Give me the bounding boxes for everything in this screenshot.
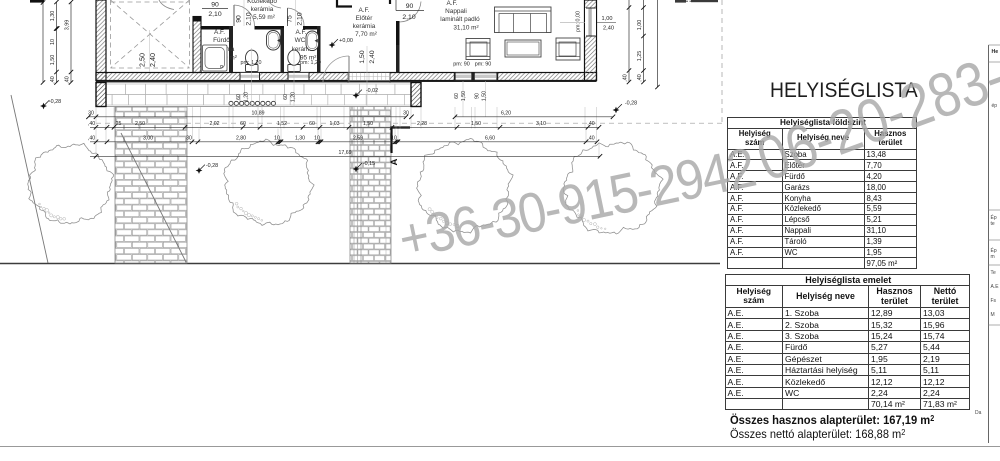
svg-text:Ép: Ép	[991, 214, 997, 221]
svg-text:kerámia: kerámia	[353, 23, 376, 30]
svg-text:Közlekedő: Közlekedő	[247, 0, 277, 5]
svg-text:10,89: 10,89	[252, 111, 265, 117]
svg-text:2,40: 2,40	[369, 50, 376, 63]
svg-text:1,20: 1,20	[244, 92, 250, 102]
svg-text:Ép: Ép	[991, 247, 997, 254]
svg-text:,40: ,40	[623, 74, 629, 82]
svg-text:2,50: 2,50	[138, 53, 147, 67]
svg-text:Da: Da	[975, 410, 982, 416]
svg-text:,40: ,40	[65, 76, 71, 84]
svg-text:1,00: 1,00	[602, 16, 613, 22]
svg-text:,40: ,40	[587, 121, 594, 127]
svg-text:1,30: 1,30	[295, 136, 305, 142]
svg-text:30: 30	[88, 111, 94, 117]
svg-text:1,30: 1,30	[50, 11, 56, 22]
svg-text:pm: 90: pm: 90	[475, 62, 491, 68]
svg-text:25: 25	[116, 121, 122, 127]
svg-text:kerámia: kerámia	[251, 6, 274, 13]
svg-text:A.F.: A.F.	[214, 29, 225, 36]
svg-text:,40: ,40	[88, 121, 95, 127]
svg-text:A: A	[389, 158, 400, 165]
svg-text:pm: 1,20: pm: 1,20	[300, 60, 321, 66]
svg-text:pm: 90: pm: 90	[453, 62, 469, 68]
svg-text:-0,28: -0,28	[206, 163, 218, 169]
svg-text:1,52: 1,52	[277, 121, 287, 127]
svg-text:Előtér: Előtér	[356, 15, 374, 22]
svg-text:pm: 0,00: pm: 0,00	[576, 11, 582, 32]
svg-text:pm: 1,20: pm: 1,20	[241, 60, 262, 66]
svg-text:60: 60	[283, 94, 289, 100]
svg-text:10: 10	[314, 136, 320, 142]
svg-text:2,10: 2,10	[402, 14, 415, 21]
svg-text:Fs: Fs	[991, 298, 997, 304]
svg-text:30: 30	[186, 136, 192, 142]
svg-text:2,10: 2,10	[208, 11, 221, 18]
svg-text:-0,28: -0,28	[625, 101, 637, 107]
svg-text:M: M	[991, 312, 995, 318]
svg-text:,40: ,40	[637, 74, 643, 82]
svg-text:A.F.: A.F.	[295, 29, 306, 36]
svg-text:,40: ,40	[88, 136, 95, 142]
svg-text:A.F.: A.F.	[446, 0, 457, 7]
svg-text:6,20: 6,20	[501, 111, 511, 117]
svg-text:1,50: 1,50	[461, 91, 467, 101]
svg-text:laminált padló: laminált padló	[440, 16, 480, 23]
svg-text:3,10: 3,10	[536, 121, 546, 127]
svg-text:1,20: 1,20	[291, 92, 297, 102]
svg-text:2,10: 2,10	[246, 12, 253, 25]
svg-text:1,50: 1,50	[359, 50, 366, 63]
svg-text:1,50: 1,50	[363, 121, 373, 127]
svg-text:2,80: 2,80	[236, 136, 246, 142]
svg-text:60: 60	[240, 121, 246, 127]
svg-text:-0,02: -0,02	[366, 88, 378, 94]
svg-text:2,50: 2,50	[135, 121, 145, 127]
svg-text:,40: ,40	[50, 76, 56, 84]
svg-text:2,28: 2,28	[417, 121, 427, 127]
svg-text:-0,15: -0,15	[363, 161, 375, 167]
svg-text:75: 75	[287, 15, 294, 23]
svg-text:1,03: 1,03	[329, 121, 339, 127]
svg-text:Te: Te	[991, 270, 997, 276]
svg-text:A.F.: A.F.	[358, 7, 369, 14]
svg-text:60: 60	[454, 93, 460, 99]
svg-text:1,50: 1,50	[50, 55, 56, 66]
svg-text:2,59: 2,59	[353, 136, 363, 142]
svg-text:m: m	[991, 254, 995, 260]
svg-text:1,25: 1,25	[637, 51, 643, 62]
svg-text:2,40: 2,40	[603, 26, 614, 32]
svg-text:WC: WC	[295, 37, 306, 44]
svg-text:3,99: 3,99	[65, 20, 71, 31]
svg-text:10: 10	[391, 136, 397, 142]
svg-text:1,50: 1,50	[471, 121, 481, 127]
svg-text:1,50: 1,50	[482, 91, 488, 101]
svg-text:90: 90	[236, 15, 243, 23]
svg-text:30: 30	[403, 111, 409, 117]
svg-text:31,10 m²: 31,10 m²	[453, 25, 478, 32]
svg-text:17,69: 17,69	[339, 150, 352, 156]
svg-text:90: 90	[475, 93, 481, 99]
svg-text:90: 90	[211, 2, 219, 9]
svg-text:3,00: 3,00	[143, 136, 153, 142]
svg-text:1,00: 1,00	[637, 20, 643, 31]
svg-text:10: 10	[274, 136, 280, 142]
svg-text:10: 10	[50, 39, 56, 45]
svg-text:6,60: 6,60	[485, 136, 495, 142]
svg-text:+0,00: +0,00	[339, 38, 353, 44]
svg-text:Nappali: Nappali	[445, 8, 467, 15]
svg-text:2,10: 2,10	[297, 12, 304, 25]
svg-text:90: 90	[406, 3, 414, 10]
svg-text:,40: ,40	[587, 136, 594, 142]
svg-text:60: 60	[309, 121, 315, 127]
svg-text:Fürdő: Fürdő	[213, 37, 230, 44]
svg-text:7,70 m²: 7,70 m²	[355, 31, 377, 38]
svg-text:5,59 m²: 5,59 m²	[253, 14, 275, 21]
svg-text:te: te	[991, 221, 995, 227]
svg-text:2,02: 2,02	[209, 121, 219, 127]
svg-text:-0,28: -0,28	[49, 99, 61, 105]
svg-text:A.E: A.E	[991, 284, 1000, 290]
svg-text:60: 60	[236, 94, 242, 100]
